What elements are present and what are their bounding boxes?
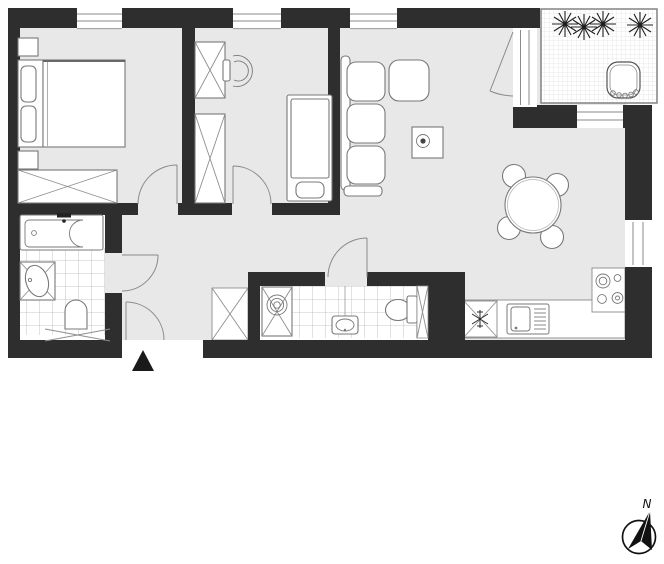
- wardrobe-icon: [195, 42, 225, 203]
- floor-plan-svg: N: [0, 0, 664, 564]
- room-balcony: [541, 9, 657, 103]
- pillow-icon: [21, 66, 36, 102]
- window-kitchen-right: [625, 220, 652, 267]
- cooktop-icon: [592, 268, 625, 312]
- bathtub-icon: [20, 213, 103, 250]
- fridge-icon: [464, 301, 497, 337]
- pillow-icon: [21, 106, 36, 142]
- ottoman-icon: [389, 60, 429, 101]
- wardrobe-icon: [18, 170, 117, 203]
- washing-machine-icon: [262, 287, 292, 336]
- wicker-chair-icon: [607, 62, 640, 98]
- vent-shaft-icon: [417, 286, 428, 338]
- coffee-table-icon: [412, 127, 443, 158]
- window-under-balcony: [577, 105, 623, 128]
- toilet-icon: [65, 300, 87, 329]
- double-bed-icon: [43, 60, 125, 147]
- floor-plan-canvas: N: [0, 0, 664, 564]
- window-living-top: [350, 8, 397, 29]
- compass: N: [623, 497, 656, 554]
- single-bed-icon: [287, 95, 332, 201]
- faucet-icon: [57, 213, 71, 218]
- window-kids-room: [233, 8, 281, 29]
- entrance-marker: [132, 350, 154, 371]
- hall-closet-icon: [212, 288, 248, 340]
- room-bedroom: [18, 38, 125, 203]
- nightstand-icon: [18, 151, 38, 169]
- nightstand-icon: [18, 38, 38, 56]
- window-bedroom: [77, 8, 122, 29]
- north-label: N: [643, 497, 652, 511]
- kitchen-sink-icon: [507, 304, 549, 334]
- vanity-sink-icon: [20, 262, 55, 300]
